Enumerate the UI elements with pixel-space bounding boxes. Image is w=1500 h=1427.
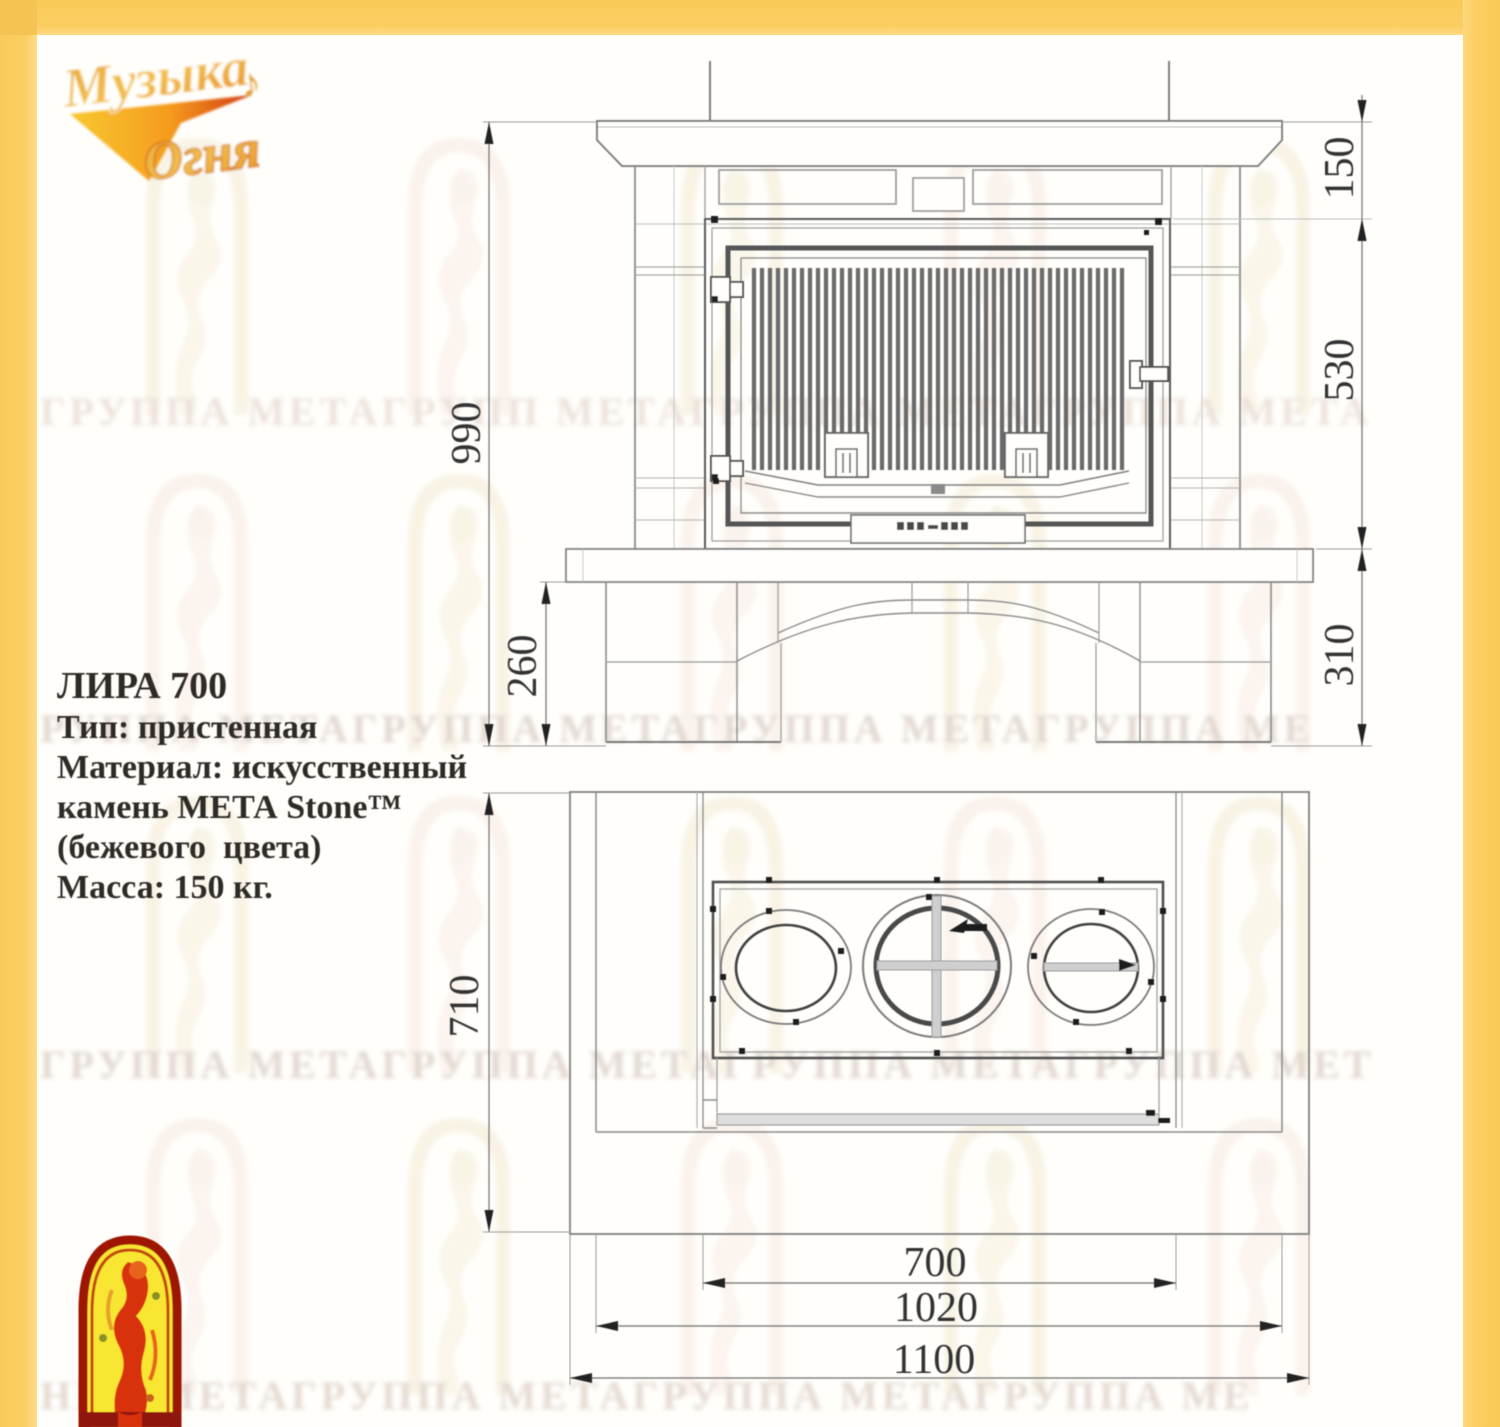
svg-text:1020: 1020 bbox=[894, 1285, 978, 1331]
svg-text:(бежевого цвета): (бежевого цвета) bbox=[57, 829, 321, 866]
svg-text:ГРУППА МЕТАГРУПП МЕТАГРУППА: ГРУППА МЕТАГРУПП МЕТАГРУППА МЕТАГРУППА М… bbox=[40, 389, 1373, 434]
svg-text:260: 260 bbox=[500, 635, 546, 698]
svg-text:710: 710 bbox=[442, 975, 488, 1038]
svg-text:Масса: 150 кг.: Масса: 150 кг. bbox=[57, 869, 273, 906]
svg-text:Тип: пристенная: Тип: пристенная bbox=[57, 709, 317, 746]
svg-text:310: 310 bbox=[1317, 624, 1363, 687]
svg-text:ЛИРА 700: ЛИРА 700 bbox=[57, 665, 227, 707]
svg-text:ГРУППА МЕТАГРУППА МЕТАГРУППА М: ГРУППА МЕТАГРУППА МЕТАГРУППА МЕТАГРУППА … bbox=[40, 1042, 1375, 1087]
svg-text:150: 150 bbox=[1317, 137, 1363, 200]
svg-text:камень МЕТА Stone™: камень МЕТА Stone™ bbox=[57, 789, 401, 826]
svg-text:Материал: искусственный: Материал: искусственный bbox=[57, 749, 467, 786]
svg-text:НПА МЕТАГРУППА МЕТАГРУППА МЕТА: НПА МЕТАГРУППА МЕТАГРУППА МЕТАГРУППА МЕ bbox=[40, 1373, 1254, 1418]
svg-text:990: 990 bbox=[444, 402, 490, 465]
svg-text:700: 700 bbox=[904, 1240, 967, 1286]
svg-text:530: 530 bbox=[1317, 339, 1363, 402]
svg-text:1100: 1100 bbox=[893, 1337, 975, 1383]
